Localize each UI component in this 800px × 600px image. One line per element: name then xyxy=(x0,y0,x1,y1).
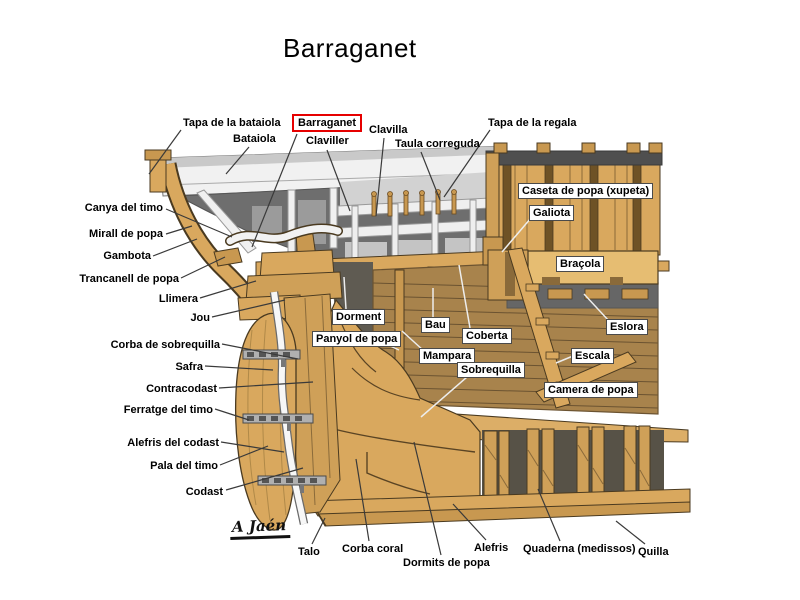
label-safra: Safra xyxy=(175,361,203,373)
label-trancanell-de-popa: Trancanell de popa xyxy=(79,273,179,285)
label-pala-del-timo: Pala del timo xyxy=(150,460,218,472)
label-camera-de-popa: Camera de popa xyxy=(544,382,638,398)
label-taula-correguda: Taula correguda xyxy=(395,138,480,150)
label-dorment: Dorment xyxy=(332,309,385,325)
label-sobrequilla: Sobrequilla xyxy=(457,362,525,378)
label-codast: Codast xyxy=(186,486,223,498)
label-dormits-de-popa: Dormits de popa xyxy=(403,557,490,569)
caseta-de-popa xyxy=(483,143,662,265)
label-tapa-de-la-regala: Tapa de la regala xyxy=(488,117,576,129)
label-gambota: Gambota xyxy=(103,250,151,262)
label-caseta-de-popa: Caseta de popa (xupeta) xyxy=(518,183,653,199)
label-quaderna: Quaderna (medissos) xyxy=(523,543,635,555)
label-bracola: Braçola xyxy=(556,256,604,272)
label-ferratge-del-timo: Ferratge del timo xyxy=(124,404,213,416)
label-bau: Bau xyxy=(421,317,450,333)
label-alefris: Alefris xyxy=(474,542,508,554)
label-alefris-del-codast: Alefris del codast xyxy=(127,437,219,449)
label-bataiola: Bataiola xyxy=(233,133,276,145)
label-escala: Escala xyxy=(571,348,614,364)
label-llimera: Llimera xyxy=(159,293,198,305)
figure: Barraganet A Jaén Barraganet Tapa de la … xyxy=(0,0,800,600)
label-corba-de-sobrequilla: Corba de sobrequilla xyxy=(111,339,220,351)
diagram-title: Barraganet xyxy=(283,33,417,64)
label-mirall-de-popa: Mirall de popa xyxy=(89,228,163,240)
label-coberta: Coberta xyxy=(462,328,512,344)
label-quilla: Quilla xyxy=(638,546,669,558)
label-contracodast: Contracodast xyxy=(146,383,217,395)
label-eslora: Eslora xyxy=(606,319,648,335)
author-signature: A Jaén xyxy=(230,516,291,540)
label-panyol-de-popa: Panyol de popa xyxy=(312,331,401,347)
label-galiota: Galiota xyxy=(529,205,574,221)
label-talo: Talo xyxy=(298,546,320,558)
ship-stern-diagram xyxy=(0,0,800,600)
label-barraganet-highlighted: Barraganet xyxy=(292,114,362,132)
label-canya-del-timo: Canya del timo xyxy=(85,202,163,214)
label-claviller: Claviller xyxy=(306,135,349,147)
label-tapa-de-la-bataiola: Tapa de la bataiola xyxy=(183,117,281,129)
label-clavilla: Clavilla xyxy=(369,124,408,136)
label-corba-coral: Corba coral xyxy=(342,543,403,555)
label-jou: Jou xyxy=(190,312,210,324)
